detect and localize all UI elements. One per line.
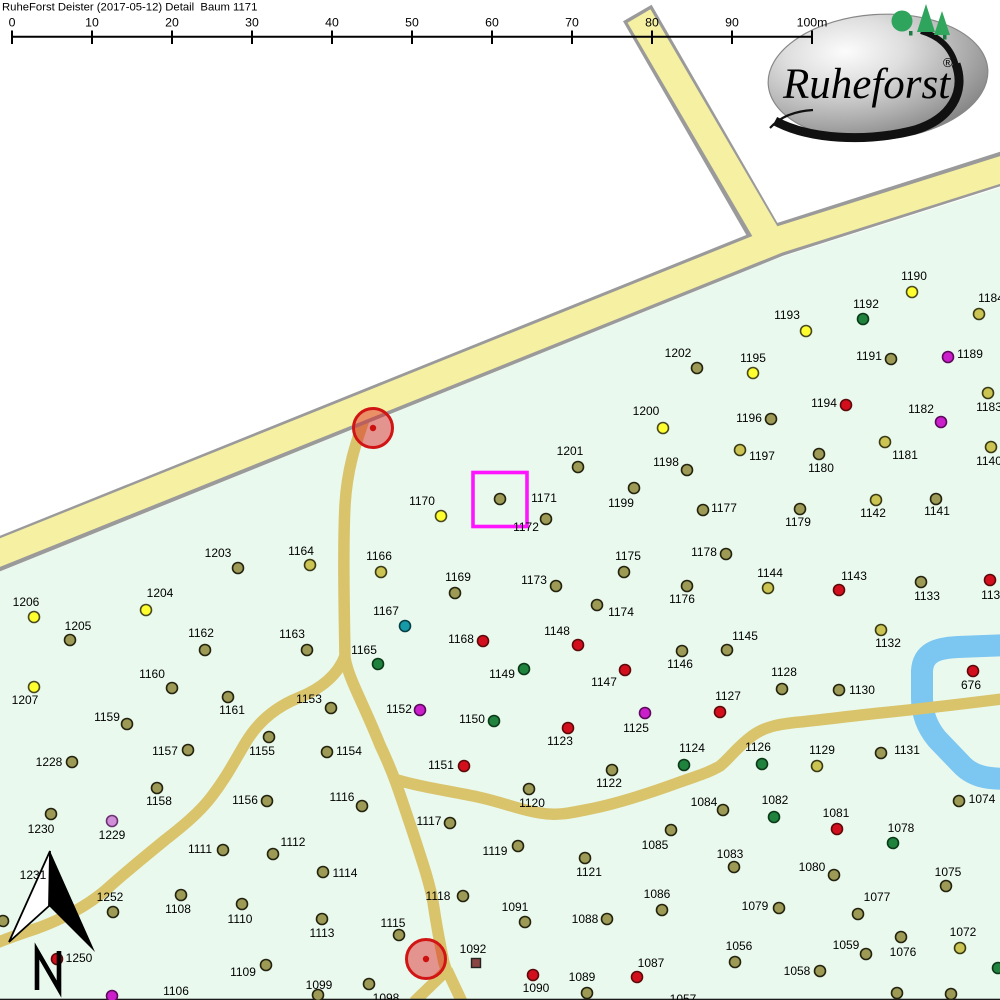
svg-text:1087: 1087 (638, 956, 665, 970)
svg-text:1152: 1152 (386, 702, 412, 716)
svg-text:1058: 1058 (784, 964, 811, 978)
svg-text:1127: 1127 (715, 689, 741, 703)
svg-text:1228: 1228 (36, 755, 63, 769)
svg-text:1178: 1178 (691, 545, 717, 559)
svg-text:1202: 1202 (665, 346, 692, 360)
svg-text:1098: 1098 (373, 991, 400, 1000)
svg-text:1081: 1081 (823, 806, 850, 820)
svg-text:1106: 1106 (163, 984, 189, 998)
svg-text:0: 0 (9, 16, 16, 30)
svg-text:1145: 1145 (732, 629, 758, 643)
svg-text:1140: 1140 (976, 454, 1000, 468)
svg-text:1074: 1074 (969, 792, 996, 806)
svg-text:20: 20 (165, 16, 179, 30)
svg-text:1193: 1193 (774, 308, 800, 322)
svg-text:1153: 1153 (296, 692, 322, 706)
svg-text:90: 90 (725, 16, 739, 30)
svg-text:1191: 1191 (856, 349, 882, 363)
svg-text:1163: 1163 (279, 627, 305, 641)
svg-text:1141: 1141 (924, 504, 950, 518)
svg-text:1113: 1113 (310, 926, 335, 940)
svg-text:1230: 1230 (28, 822, 55, 836)
svg-text:1123: 1123 (547, 734, 573, 748)
svg-text:1080: 1080 (799, 860, 826, 874)
svg-text:1125: 1125 (623, 721, 649, 735)
svg-text:10: 10 (85, 16, 99, 30)
svg-text:1162: 1162 (188, 626, 214, 640)
svg-text:1184: 1184 (978, 291, 1000, 305)
svg-text:1099: 1099 (306, 978, 333, 992)
svg-text:1110: 1110 (228, 912, 253, 926)
svg-text:1092: 1092 (460, 942, 487, 956)
svg-text:1084: 1084 (691, 795, 718, 809)
svg-text:®: ® (943, 55, 953, 70)
svg-text:1206: 1206 (13, 595, 40, 609)
svg-text:1252: 1252 (97, 890, 124, 904)
svg-text:1204: 1204 (147, 586, 174, 600)
svg-text:1177: 1177 (711, 501, 737, 515)
svg-text:Ruheforst: Ruheforst (782, 61, 951, 108)
svg-text:1179: 1179 (785, 515, 811, 529)
svg-text:1118: 1118 (426, 889, 451, 903)
svg-text:1250: 1250 (66, 951, 93, 965)
svg-text:1117: 1117 (417, 814, 442, 828)
svg-text:1108: 1108 (165, 902, 191, 916)
svg-text:1088: 1088 (572, 912, 599, 926)
svg-text:1180: 1180 (808, 461, 834, 475)
svg-text:1142: 1142 (860, 506, 886, 520)
svg-text:1079: 1079 (742, 899, 769, 913)
svg-text:80: 80 (645, 16, 659, 30)
svg-text:1166: 1166 (366, 549, 392, 563)
svg-text:1124: 1124 (679, 741, 705, 755)
svg-text:1190: 1190 (901, 269, 927, 283)
svg-text:1155: 1155 (249, 744, 275, 758)
svg-text:1182: 1182 (908, 402, 934, 416)
svg-text:1086: 1086 (644, 887, 671, 901)
svg-text:1083: 1083 (717, 847, 744, 861)
svg-text:1077: 1077 (864, 890, 891, 904)
svg-text:1192: 1192 (853, 297, 879, 311)
svg-text:1111: 1111 (188, 842, 212, 856)
svg-text:RuheForst Deister (2017-05-12): RuheForst Deister (2017-05-12) Detail Ba… (2, 2, 257, 14)
svg-text:1146: 1146 (667, 657, 693, 671)
svg-text:1159: 1159 (94, 710, 120, 724)
svg-text:1172: 1172 (513, 520, 539, 534)
svg-text:1157: 1157 (152, 744, 178, 758)
svg-text:1085: 1085 (642, 838, 669, 852)
svg-text:1160: 1160 (139, 667, 165, 681)
svg-text:60: 60 (485, 16, 499, 30)
svg-text:1126: 1126 (745, 740, 771, 754)
svg-text:1112: 1112 (281, 835, 306, 849)
svg-text:1181: 1181 (892, 448, 918, 462)
svg-text:1174: 1174 (608, 605, 634, 619)
svg-text:1165: 1165 (351, 643, 377, 657)
svg-text:100m: 100m (797, 16, 828, 30)
svg-text:1056: 1056 (726, 939, 753, 953)
svg-text:676: 676 (961, 678, 981, 692)
svg-text:1156: 1156 (232, 793, 258, 807)
svg-text:1200: 1200 (633, 404, 660, 418)
svg-text:1132: 1132 (875, 636, 901, 650)
svg-text:1114: 1114 (333, 866, 358, 880)
svg-text:1169: 1169 (445, 570, 471, 584)
svg-text:1131: 1131 (894, 743, 920, 757)
svg-text:1075: 1075 (935, 865, 962, 879)
svg-text:1130: 1130 (849, 683, 875, 697)
svg-text:1119: 1119 (483, 844, 508, 858)
svg-text:1091: 1091 (502, 900, 529, 914)
svg-text:1167: 1167 (373, 604, 399, 618)
svg-text:1197: 1197 (749, 449, 775, 463)
svg-text:50: 50 (405, 16, 419, 30)
svg-text:1115: 1115 (381, 916, 406, 930)
svg-text:1173: 1173 (521, 573, 547, 587)
svg-text:1154: 1154 (336, 744, 362, 758)
svg-text:30: 30 (245, 16, 259, 30)
svg-text:1059: 1059 (833, 938, 860, 952)
svg-text:70: 70 (565, 16, 579, 30)
svg-text:1158: 1158 (146, 794, 172, 808)
svg-text:1151: 1151 (428, 758, 454, 772)
svg-text:1194: 1194 (811, 396, 837, 410)
svg-text:1078: 1078 (888, 821, 915, 835)
svg-text:1150: 1150 (459, 712, 485, 726)
svg-text:1121: 1121 (576, 865, 602, 879)
svg-text:1136: 1136 (981, 588, 1000, 602)
svg-text:1176: 1176 (669, 592, 695, 606)
svg-text:1143: 1143 (841, 569, 867, 583)
svg-text:1122: 1122 (596, 776, 622, 790)
svg-text:1231: 1231 (20, 868, 47, 882)
svg-text:1207: 1207 (12, 693, 39, 707)
svg-text:1057: 1057 (670, 992, 697, 1000)
svg-text:1196: 1196 (736, 411, 762, 425)
svg-text:1090: 1090 (523, 981, 550, 995)
svg-text:1120: 1120 (519, 796, 545, 810)
svg-text:1076: 1076 (890, 945, 917, 959)
svg-text:1199: 1199 (608, 496, 634, 510)
svg-text:1147: 1147 (591, 675, 617, 689)
svg-text:1195: 1195 (740, 351, 766, 365)
svg-text:1089: 1089 (569, 970, 596, 984)
svg-text:1175: 1175 (615, 549, 641, 563)
svg-text:1198: 1198 (653, 455, 679, 469)
svg-text:1170: 1170 (409, 494, 435, 508)
svg-text:1109: 1109 (230, 965, 256, 979)
svg-text:1183: 1183 (976, 400, 1000, 414)
svg-text:40: 40 (325, 16, 339, 30)
svg-text:1149: 1149 (489, 667, 515, 681)
svg-text:1128: 1128 (771, 665, 797, 679)
svg-text:1116: 1116 (330, 790, 355, 804)
svg-text:1205: 1205 (65, 619, 92, 633)
svg-text:1171: 1171 (531, 491, 557, 505)
svg-text:1082: 1082 (762, 793, 789, 807)
svg-text:1144: 1144 (757, 566, 783, 580)
svg-text:1201: 1201 (557, 444, 584, 458)
svg-text:1203: 1203 (205, 546, 232, 560)
svg-text:1164: 1164 (288, 544, 314, 558)
svg-text:1129: 1129 (809, 743, 835, 757)
svg-text:1189: 1189 (957, 347, 983, 361)
svg-text:1133: 1133 (914, 589, 940, 603)
svg-text:1229: 1229 (99, 828, 126, 842)
svg-text:1072: 1072 (950, 925, 977, 939)
svg-text:1161: 1161 (219, 703, 245, 717)
svg-text:1168: 1168 (448, 632, 474, 646)
svg-text:1148: 1148 (544, 624, 570, 638)
